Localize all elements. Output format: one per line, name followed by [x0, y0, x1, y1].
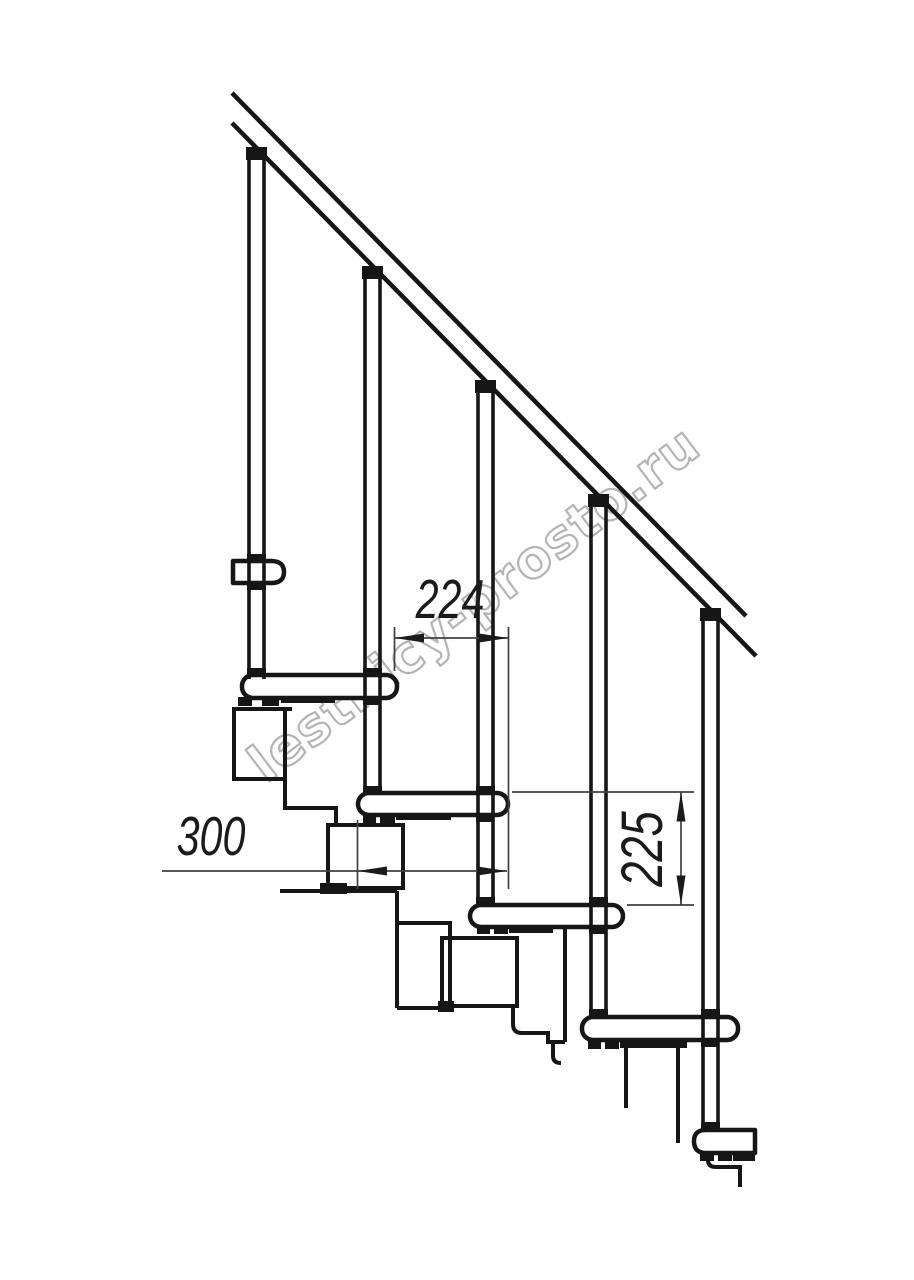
connectors — [238, 147, 755, 1161]
plate-t1 — [281, 697, 335, 703]
tread-3 — [470, 905, 623, 927]
baluster-3 — [478, 382, 493, 907]
tread-2 — [358, 793, 508, 815]
dimension-225-label: 225 — [611, 810, 676, 887]
foot-t2-a — [363, 814, 376, 823]
foot-t5-b — [718, 1152, 732, 1161]
foot-t3-a — [477, 926, 490, 934]
foot-t1-a — [238, 697, 252, 706]
joint-module-2 — [320, 883, 347, 894]
clamp-t1-b1 — [247, 668, 266, 676]
support-modules — [234, 709, 740, 1187]
foot-t1-b — [262, 697, 279, 706]
clamp-t2-b2 — [363, 786, 382, 794]
clamp-t1-b2 — [363, 668, 382, 676]
plate-t4 — [620, 1041, 687, 1048]
clamp-t3-b4-under — [589, 926, 607, 934]
tread-top-partial — [233, 561, 284, 583]
dimension-300-label: 300 — [177, 806, 246, 867]
clamp-t3-b3 — [476, 897, 495, 906]
technical-drawing-canvas: lestnicy-prosto.ru — [0, 0, 914, 1280]
foot-t2-b — [380, 814, 395, 823]
dimensions: 224 300 225 — [162, 569, 694, 905]
plate-t3 — [509, 926, 553, 933]
foot-t4-a — [588, 1040, 601, 1049]
foot-t4-b — [605, 1040, 619, 1049]
clamp-t2-b3 — [476, 786, 495, 794]
module-6-outline — [708, 1160, 740, 1187]
baluster-4 — [591, 497, 606, 1019]
arrow-300-left — [358, 867, 388, 876]
clamp-t4-b4 — [589, 1009, 608, 1018]
clamp-t1-b2-under — [363, 697, 381, 705]
clamp-t3-b4 — [589, 897, 608, 906]
clamp-t5-b5 — [701, 1122, 720, 1131]
tread-4 — [582, 1017, 738, 1040]
joint-module-3 — [438, 1001, 454, 1012]
plate-t2 — [396, 814, 451, 820]
baluster-1 — [249, 150, 264, 679]
dimension-step-rise: 225 — [512, 792, 694, 905]
staircase-drawing: lestnicy-prosto.ru — [0, 0, 914, 1280]
plate-t5 — [733, 1152, 755, 1161]
baluster-5 — [703, 611, 718, 1132]
clamp-top-tread-lower — [247, 583, 266, 590]
clamp-t4-b5-under — [701, 1039, 719, 1047]
arrow-225-top — [677, 792, 686, 822]
dimension-224-label: 224 — [415, 569, 485, 630]
clamp-t4-b5 — [701, 1009, 720, 1018]
module-2-box — [328, 825, 403, 888]
clamp-top-tread-upper — [247, 554, 266, 562]
tread-5-partial — [694, 1130, 755, 1153]
arrow-225-bottom — [677, 876, 686, 906]
handrail-top-edge — [232, 93, 746, 616]
foot-t5-a — [700, 1152, 714, 1161]
foot-t3-b — [494, 926, 508, 934]
module-4-foot — [553, 1042, 561, 1063]
module-3-box — [442, 938, 517, 1006]
module-4-bottom-outline — [513, 1006, 565, 1042]
clamp-t2-b3-under — [476, 814, 494, 822]
